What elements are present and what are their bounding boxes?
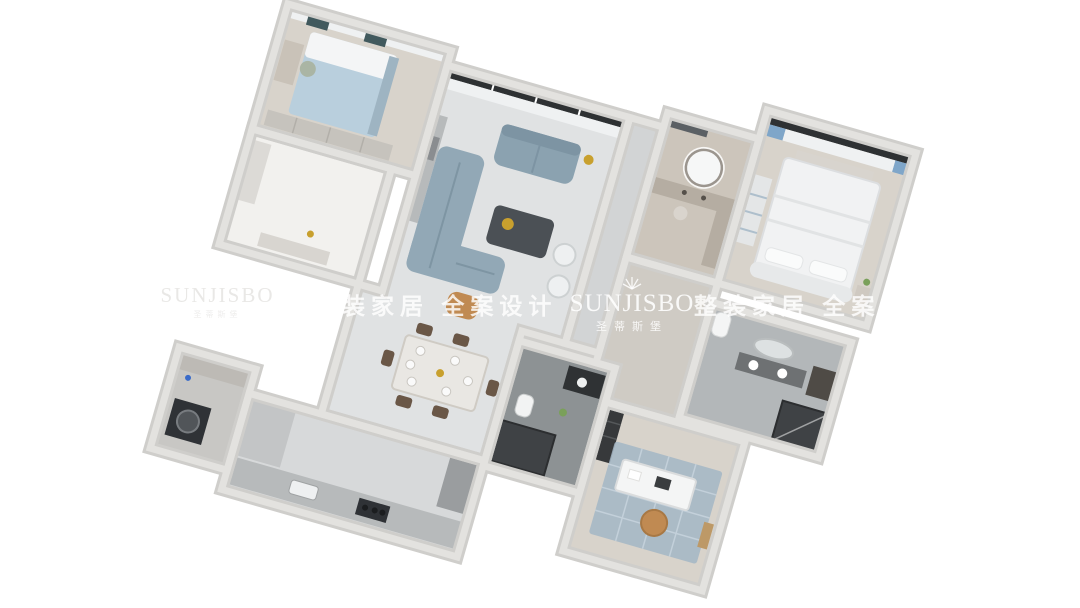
apartment-plan <box>145 0 917 608</box>
floorplan-render: SUNJISBO 圣蒂斯堡 整装家居 全案设计 SUNJISBO 圣蒂斯堡 整装… <box>0 0 1080 608</box>
floorplan-svg <box>0 0 1080 608</box>
